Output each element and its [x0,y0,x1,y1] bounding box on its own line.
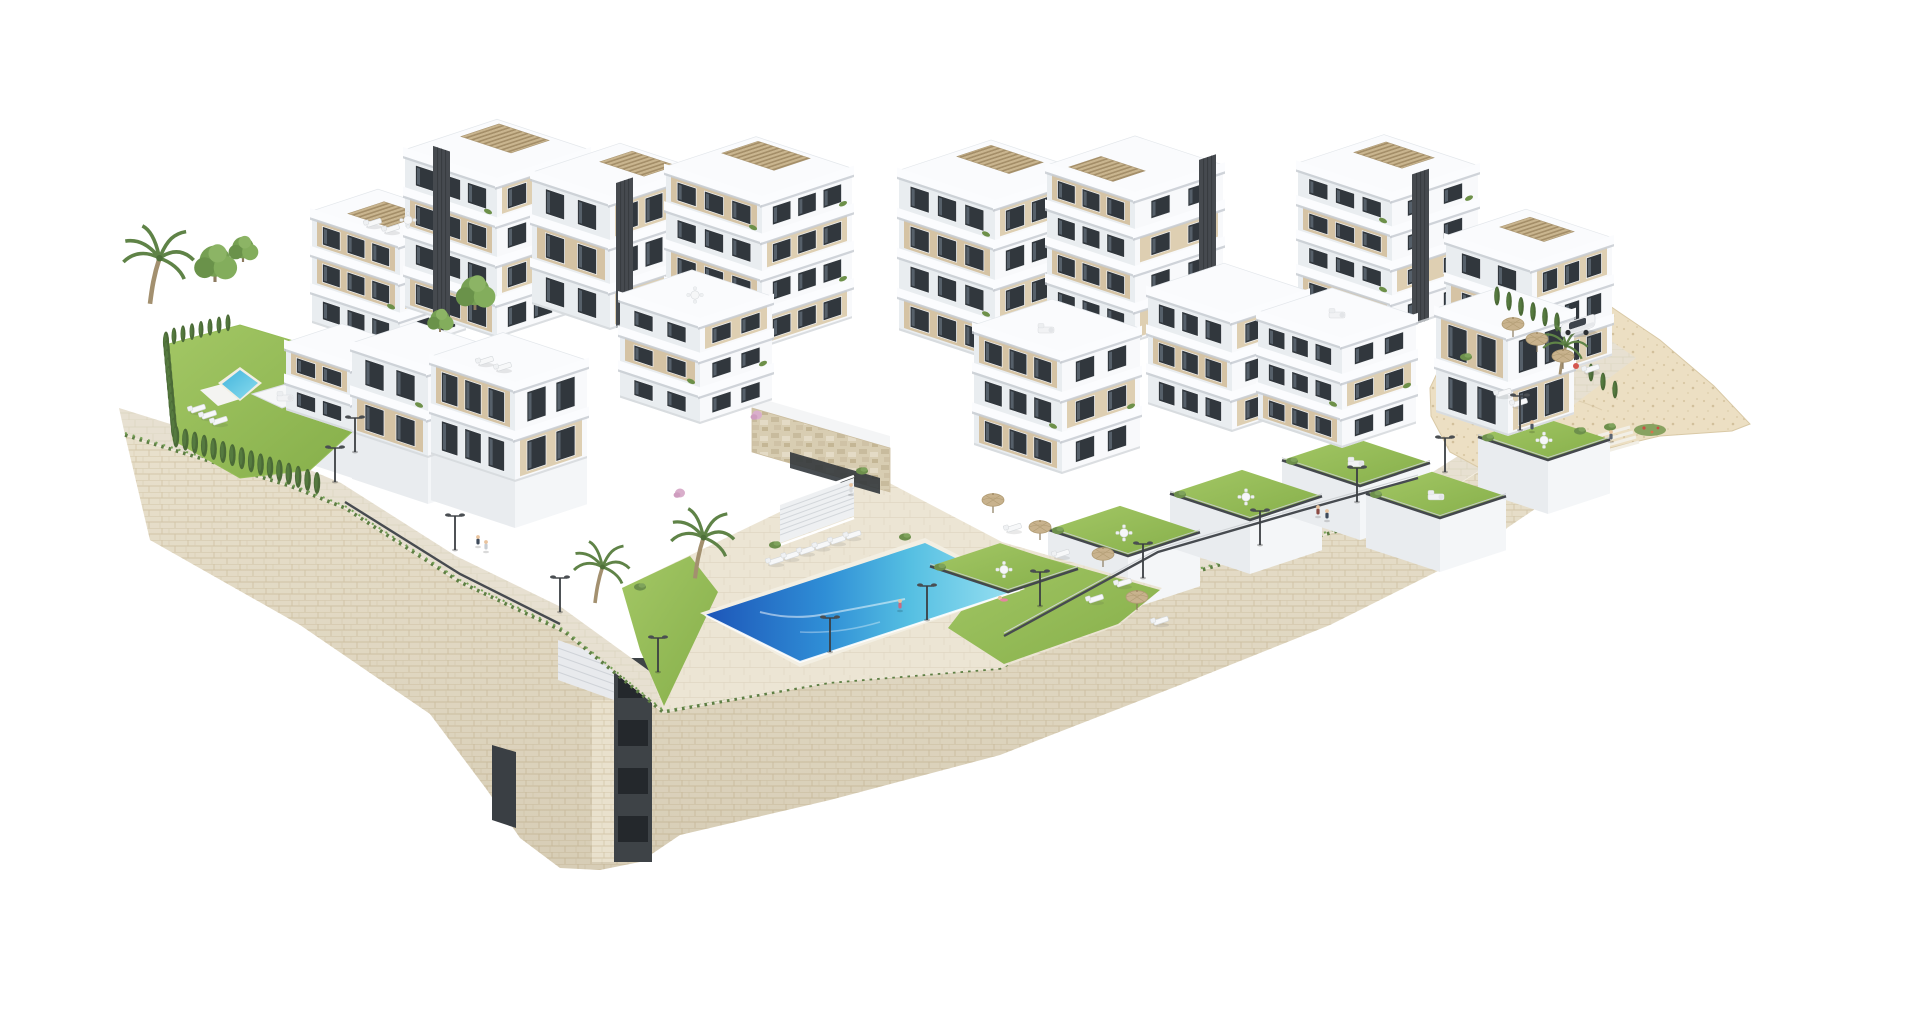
window-reflection [1270,366,1273,380]
window-reflection [1077,402,1080,420]
window-reflection [373,283,376,298]
window-reflection [1035,359,1038,377]
ellipse [359,415,365,418]
window-reflection [1293,410,1296,424]
ellipse [1529,431,1535,433]
window-reflection [1084,191,1087,206]
window-reflection [579,290,582,312]
window-reflection [1007,211,1010,229]
block-east-front-2 [1434,286,1576,436]
window-reflection [1059,183,1062,198]
window-reflection [1247,363,1250,380]
window-reflection [509,189,512,206]
window-reflection [1084,265,1087,280]
window-reflection [1033,242,1036,260]
window-reflection [579,246,582,268]
window-reflection [1160,306,1163,323]
window-reflection [636,382,639,395]
block-ne-front-1 [972,299,1142,474]
cypress-tree [248,450,255,472]
window-reflection [298,360,301,372]
window-reflection [1409,201,1412,213]
window-reflection [1409,236,1412,248]
street-lamp [445,513,465,551]
window-reflection [1160,345,1163,362]
window-reflection [743,354,746,367]
window-reflection [1386,374,1389,388]
window-reflection [466,382,469,409]
ellipse [475,546,481,548]
window-reflection [1546,384,1549,414]
ellipse [325,445,331,448]
window-reflection [324,266,327,281]
window-reflection [417,168,420,185]
window-reflection [825,190,828,205]
window-reflection [349,237,352,252]
ellipse [1361,465,1367,468]
ellipse [1044,569,1050,572]
parasol [982,493,1004,513]
window-reflection [986,343,989,361]
window-reflection [939,278,942,296]
window-reflection [774,245,777,260]
window-reflection [367,407,370,430]
window-reflection [1450,327,1453,357]
lawn-lounger [1003,521,1022,534]
swim-float [1000,598,1008,601]
window-reflection [986,423,989,441]
window-reflection [469,303,472,320]
ellipse [662,635,668,638]
circle [476,535,480,539]
window-reflection [367,362,370,385]
window-reflection [1190,226,1193,241]
window-reflection [1190,189,1193,204]
window-reflection [939,198,942,216]
window-reflection [1153,201,1156,216]
ellipse [1250,508,1256,511]
window-reflection [398,372,401,395]
cypress-tree [239,447,246,469]
ellipse [1133,541,1139,544]
window-reflection [733,240,736,255]
window-reflection [636,347,639,360]
rect [1530,424,1533,430]
window-reflection [1035,399,1038,417]
window-reflection [966,247,969,265]
shaft-line [1416,173,1417,324]
window-reflection [509,229,512,246]
window-reflection [733,203,736,218]
rect [898,603,901,609]
garage-opening [492,745,516,828]
shaft-line [445,150,446,321]
window-reflection [443,374,446,401]
window-reflection [1033,282,1036,300]
window-reflection [469,185,472,202]
ellipse [820,615,826,618]
cypress-tree [1518,297,1524,316]
cypress-tree [1506,292,1512,311]
window-reflection [1337,259,1340,271]
window-reflection [799,236,802,251]
window-reflection [1109,352,1112,370]
window-reflection [547,279,550,301]
cypress-tree [314,472,321,494]
palm-tree [123,226,193,304]
window-reflection [1153,238,1156,253]
cypress-tree [1542,307,1548,326]
window-reflection [986,383,989,401]
window-reflection [774,320,777,335]
window-reflection [1317,418,1320,432]
window-reflection [1084,228,1087,243]
window-reflection [1520,341,1523,371]
window-reflection [912,188,915,206]
cypress-tree [172,328,177,345]
window-reflection [509,268,512,285]
window-reflection [1409,270,1412,282]
window-reflection [1499,267,1502,284]
cypress-tree [199,321,204,338]
window-reflection [647,243,650,265]
cypress-tree [1530,302,1536,321]
window-reflection [1007,251,1010,269]
window-reflection [1035,439,1038,457]
window-reflection [1183,391,1186,408]
person [483,540,489,553]
cypress-tree [181,325,186,342]
ellipse [1324,520,1330,522]
rect [1316,509,1319,515]
window-reflection [324,229,327,244]
window-reflection [799,274,802,289]
ellipse [345,415,351,418]
villa-west-1 [429,333,589,483]
window-reflection [1109,392,1112,410]
ellipse [648,635,654,638]
window-reflection [743,319,746,332]
window-reflection [349,274,352,289]
window-reflection [417,207,420,224]
window-reflection [669,324,672,337]
window-reflection [1033,202,1036,220]
cypress-tree [182,429,189,451]
window-reflection [966,327,969,345]
window-reflection [1108,199,1111,214]
window-reflection [1207,322,1210,339]
window-reflection [1463,255,1466,272]
window-reflection [1337,190,1340,202]
window-reflection [706,194,709,209]
window-reflection [324,403,327,415]
cypress-tree [267,456,274,478]
window-reflection [1356,384,1359,398]
shaft-line [1420,171,1421,322]
window-reflection [349,312,352,327]
window-reflection [679,259,682,274]
person [475,535,481,548]
window-reflection [1247,402,1250,419]
cypress-tree [173,425,180,447]
ellipse [1510,393,1516,396]
cypress-tree [226,314,231,331]
window-reflection [1364,233,1367,245]
cypress-tree [295,466,302,488]
ellipse [564,575,570,578]
window-reflection [1207,360,1210,377]
window-reflection [469,224,472,241]
window-reflection [966,207,969,225]
rect [484,544,487,550]
cypress-tree [304,469,311,491]
window-reflection [529,393,532,420]
window-reflection [774,282,777,297]
cypress-tree [210,438,217,460]
window-reflection [912,268,915,286]
window-reflection [706,231,709,246]
window-reflection [466,431,469,458]
window-reflection [373,245,376,260]
circle [898,599,902,603]
window-reflection [1356,420,1359,434]
ellipse [1347,465,1353,468]
window-reflection [1011,431,1014,449]
window-reflection [324,304,327,319]
window-reflection [417,286,420,303]
cypress-tree [257,453,264,475]
window-reflection [939,238,942,256]
window-reflection [1160,384,1163,401]
stair-tower-opening [618,720,648,746]
window-reflection [825,265,828,280]
window-reflection [1310,181,1313,193]
window-reflection [799,311,802,326]
window-reflection [1356,348,1359,362]
window-reflection [1364,199,1367,211]
cypress-tree [1612,381,1617,399]
window-reflection [1059,220,1062,235]
window-reflection [558,383,561,410]
rect [1609,434,1612,440]
window-reflection [1183,314,1186,331]
circle [484,540,488,544]
stair-tower-stone-pillar [592,700,614,862]
window-reflection [647,199,650,221]
window-reflection [547,191,550,213]
ellipse [1264,508,1270,511]
window-reflection [1293,338,1296,352]
window-reflection [1310,250,1313,262]
window-reflection [966,287,969,305]
ellipse [550,575,556,578]
window-reflection [1386,410,1389,424]
circle [1325,509,1329,513]
flowers [1642,426,1645,429]
window-reflection [679,184,682,199]
window-reflection [417,247,420,264]
window-reflection [774,207,777,222]
window-reflection [1450,379,1453,409]
circle [1530,420,1534,424]
ellipse [1030,569,1036,572]
window-reflection [1077,362,1080,380]
window-reflection [1479,336,1482,366]
ellipse [445,513,451,516]
window-reflection [1588,298,1591,315]
window-reflection [547,235,550,257]
window-reflection [1011,351,1014,369]
ellipse [931,583,937,586]
leafy-tree [229,236,259,262]
shaft-line [437,147,438,318]
window-reflection [298,394,301,406]
palm-tree [574,542,630,604]
window-reflection [1566,266,1569,283]
parasol [1029,520,1051,540]
window-reflection [825,228,828,243]
facade-sw [530,170,612,331]
ellipse [459,513,465,516]
cypress-tree [1600,373,1605,391]
window-reflection [490,439,493,466]
window-reflection [398,417,401,440]
window-reflection [636,313,639,326]
window-reflection [1270,402,1273,416]
window-reflection [743,388,746,401]
window-reflection [490,390,493,417]
ellipse [834,615,840,618]
window-reflection [679,222,682,237]
stair-tower-opening [618,768,648,794]
flower-bed [1634,424,1666,436]
shaft-line [441,149,442,320]
window-reflection [1386,338,1389,352]
window-reflection [912,308,915,326]
window-reflection [1270,330,1273,344]
window-reflection [1109,432,1112,450]
render-canvas: Isometric architectural rendering of a t… [0,0,1920,1024]
window-reflection [1317,382,1320,396]
window-reflection [1293,374,1296,388]
window-reflection [1588,337,1591,354]
rect [476,539,479,545]
window-reflection [799,199,802,214]
window-reflection [1007,291,1010,309]
window-reflection [1588,259,1591,276]
window-reflection [443,423,446,450]
blossom-shrub [674,489,685,498]
circle [1316,505,1320,509]
window-reflection [1445,190,1448,202]
window-reflection [1247,324,1250,341]
cypress-tree [208,319,213,336]
window-reflection [1364,268,1367,280]
ellipse [1449,435,1455,438]
window-reflection [1077,442,1080,460]
ellipse [1435,435,1441,438]
ellipse [897,610,903,612]
cypress-tree [286,463,293,485]
window-reflection [714,329,717,342]
cypress-tree [190,323,195,340]
flowers [1651,431,1654,434]
window-reflection [714,363,717,376]
window-reflection [324,369,327,381]
rect [849,487,852,493]
window-reflection [825,303,828,318]
cypress-tree [229,444,236,466]
stair-tower-opening [618,816,648,842]
shaft-line [1424,170,1425,321]
window-reflection [1479,388,1482,418]
cypress-tree [192,432,199,454]
cypress-tree [276,460,283,482]
window-reflection [1317,346,1320,360]
window-reflection [1207,399,1210,416]
window-reflection [1544,273,1547,290]
ellipse [1147,541,1153,544]
window-reflection [509,308,512,325]
window-reflection [579,202,582,224]
window-reflection [939,318,942,336]
facade-se [760,166,854,349]
cypress-tree [201,435,208,457]
ellipse [483,551,489,553]
pool-float [1573,363,1579,369]
window-reflection [1108,273,1111,288]
cypress-tree [217,317,222,334]
ellipse [1315,516,1321,518]
window-reflection [1108,236,1111,251]
window-reflection [1337,224,1340,236]
ellipse [339,445,345,448]
ellipse [917,583,923,586]
window-reflection [669,393,672,406]
window-reflection [714,398,717,411]
window-reflection [912,228,915,246]
cypress-tree [1494,287,1500,306]
ellipse [1524,393,1530,396]
window-reflection [1059,257,1062,272]
window-reflection [558,432,561,459]
circle [1609,430,1613,434]
cypress-tree [220,441,227,463]
window-reflection [1011,391,1014,409]
rect [1325,513,1328,519]
window-reflection [529,442,532,469]
architectural-render: Isometric architectural rendering of a t… [0,0,1920,1024]
window-reflection [373,320,376,335]
ellipse [848,494,854,496]
window-reflection [1183,353,1186,370]
ellipse [1608,441,1614,443]
flowers [1657,427,1660,430]
circle [849,483,853,487]
window-reflection [1310,216,1313,228]
window-reflection [669,358,672,371]
